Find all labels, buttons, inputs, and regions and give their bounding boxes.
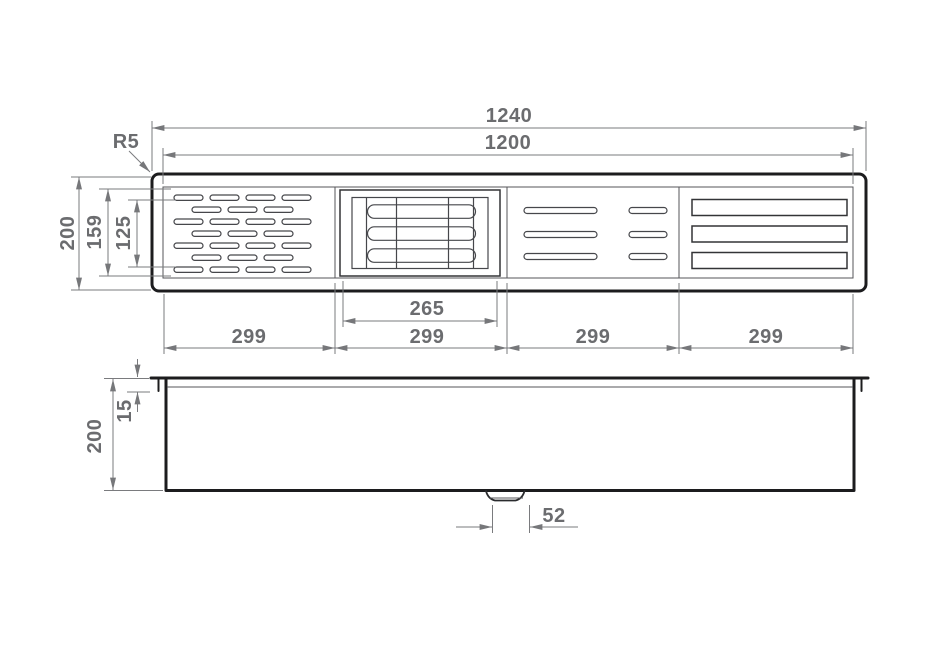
- slot-pattern-bay4: [692, 200, 847, 269]
- channel-outline: [152, 174, 866, 291]
- dim-corner-radius: R5: [113, 131, 150, 172]
- grate-pill-slots: [368, 205, 476, 262]
- drain-outlet-bump: [486, 491, 525, 501]
- dim-side-height-label: 200: [84, 419, 106, 454]
- dim-bay1-label: 299: [232, 326, 267, 348]
- slot-row: [174, 219, 311, 224]
- dim-width-inner-label: 1200: [485, 132, 532, 154]
- dim-height-slots: 125: [113, 200, 176, 267]
- dim-bay-chain: 299 299 299 299: [164, 283, 853, 354]
- dim-height-inner-label: 159: [84, 215, 106, 250]
- grate-inner-frame: [352, 198, 488, 269]
- dim-outlet-width: 52: [456, 505, 578, 533]
- dim-bay3-label: 299: [576, 326, 611, 348]
- grate-side-bars: [367, 198, 474, 269]
- dim-width-total-label: 1240: [486, 105, 533, 127]
- dim-grate-width-label: 265: [410, 298, 445, 320]
- slot-row: [174, 195, 311, 200]
- dim-height-total-label: 200: [57, 216, 79, 251]
- drain-grate-assembly: [340, 190, 500, 276]
- slot-row: [192, 207, 293, 212]
- side-view: [151, 378, 868, 501]
- slot-row: [192, 231, 293, 236]
- dim-rim-depth-label: 15: [114, 399, 136, 422]
- technical-drawing-canvas: 1240 1200 R5 200 159 125: [0, 0, 931, 651]
- dim-width-inner: 1200: [163, 132, 853, 184]
- grate-mullions: [397, 198, 449, 269]
- slot-row: [192, 255, 293, 260]
- dim-height-slots-label: 125: [113, 216, 135, 251]
- bay-divider-lines: [335, 187, 679, 278]
- slot-row: [174, 267, 311, 272]
- dim-outlet-width-label: 52: [542, 505, 565, 527]
- slot-pattern-bay3: [524, 208, 667, 260]
- slot-pattern-bay1: [174, 195, 311, 272]
- dim-bay2-label: 299: [410, 326, 445, 348]
- dim-grate-width: 265: [343, 281, 497, 327]
- top-view-dimensions: 1240 1200 R5 200 159 125: [57, 105, 866, 354]
- top-view: [152, 174, 866, 291]
- flange-edge-ticks: [159, 379, 862, 391]
- body-outline: [166, 378, 854, 491]
- dim-rim-depth: 15: [114, 359, 150, 423]
- dim-corner-radius-label: R5: [113, 131, 140, 153]
- dim-side-height: 200: [84, 379, 163, 491]
- slot-row: [174, 243, 311, 248]
- dim-bay4-label: 299: [749, 326, 784, 348]
- drawing-page: 1240 1200 R5 200 159 125: [0, 0, 931, 651]
